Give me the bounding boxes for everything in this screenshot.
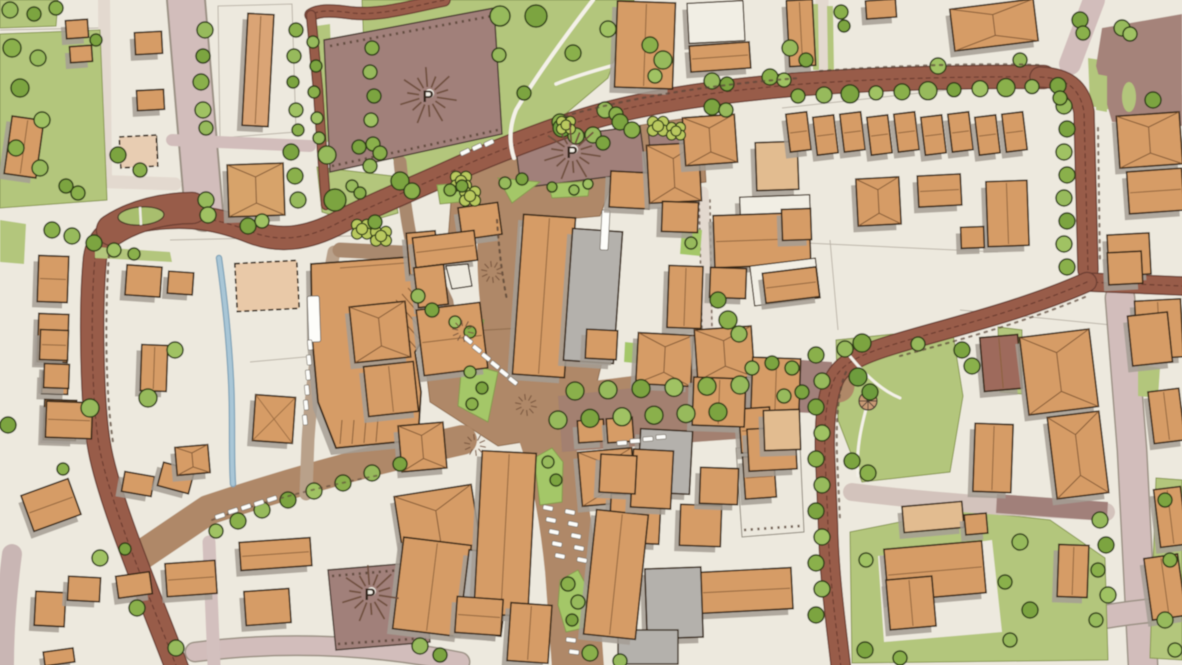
svg-text:P: P — [422, 87, 433, 106]
svg-text:P: P — [566, 143, 577, 162]
svg-text:P: P — [364, 585, 375, 604]
